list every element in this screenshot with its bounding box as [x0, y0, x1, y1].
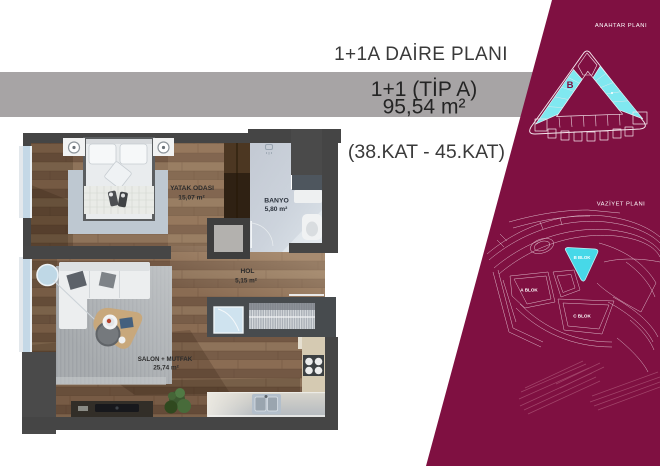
- svg-text:BANYO: BANYO: [264, 198, 289, 205]
- svg-text:YATAK ODASI: YATAK ODASI: [170, 185, 214, 192]
- svg-text:B: B: [567, 80, 574, 91]
- svg-text:25,74 m²: 25,74 m²: [153, 365, 179, 372]
- svg-text:15,07 m²: 15,07 m²: [178, 195, 205, 202]
- svg-text:C BLOK: C BLOK: [573, 314, 591, 319]
- svg-text:5,80 m²: 5,80 m²: [265, 206, 289, 213]
- svg-text:VAZİYET PLANI: VAZİYET PLANI: [597, 201, 646, 208]
- svg-text:(38.KAT - 45.KAT): (38.KAT - 45.KAT): [348, 141, 505, 163]
- svg-text:B BLOK: B BLOK: [574, 255, 592, 260]
- svg-text:ANAHTAR PLANI: ANAHTAR PLANI: [595, 23, 647, 29]
- svg-text:HOL: HOL: [241, 268, 255, 275]
- svg-text:95,54 m²: 95,54 m²: [383, 96, 466, 119]
- svg-text:1+1A DAİRE PLANI: 1+1A DAİRE PLANI: [334, 44, 508, 65]
- svg-text:5,15 m²: 5,15 m²: [235, 278, 257, 285]
- svg-text:SALON + MUTFAK: SALON + MUTFAK: [138, 356, 193, 363]
- svg-text:A BLOK: A BLOK: [520, 288, 538, 293]
